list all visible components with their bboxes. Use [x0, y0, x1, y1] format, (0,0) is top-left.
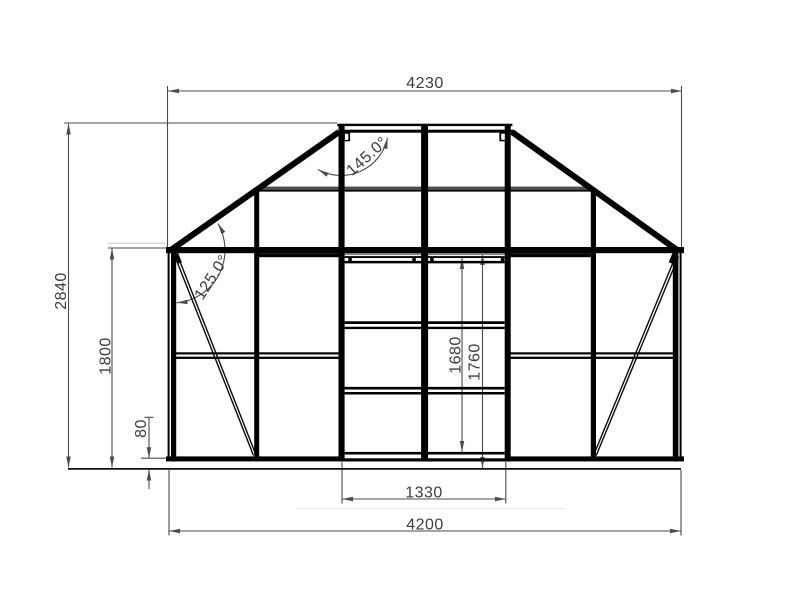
svg-text:1680: 1680	[448, 336, 465, 374]
svg-text:4230: 4230	[406, 75, 444, 92]
svg-text:4200: 4200	[406, 517, 444, 534]
svg-text:1330: 1330	[405, 485, 443, 502]
svg-text:1760: 1760	[467, 343, 484, 381]
svg-text:1800: 1800	[98, 337, 115, 375]
svg-text:2840: 2840	[53, 272, 70, 310]
svg-text:80: 80	[133, 419, 150, 438]
